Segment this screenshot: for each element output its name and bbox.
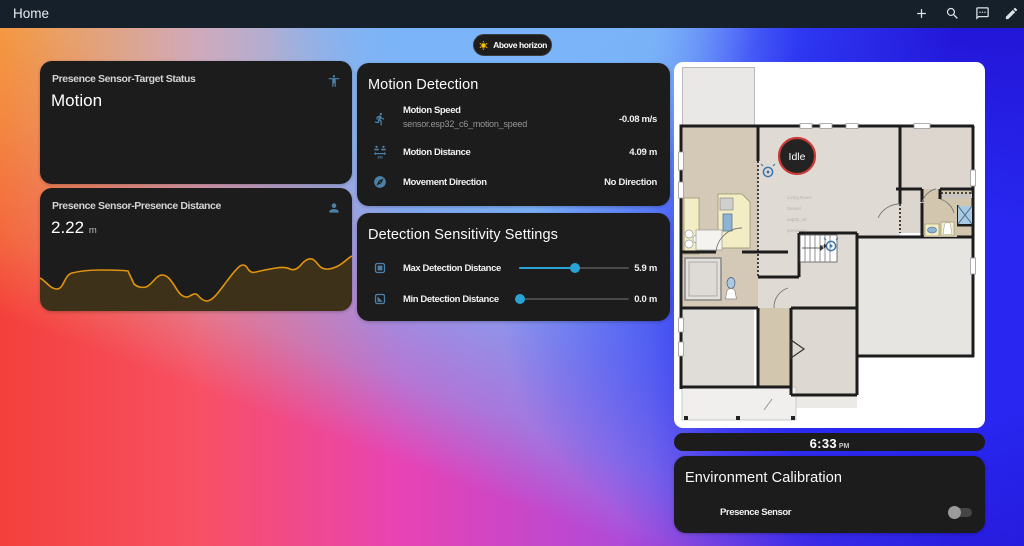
- svg-text:esp32_c6: esp32_c6: [787, 217, 807, 222]
- svg-text:Sensor: Sensor: [787, 206, 802, 211]
- svg-text:Living Room: Living Room: [787, 195, 812, 200]
- svg-text:2M: 2M: [377, 155, 382, 159]
- svg-text:Idle: Idle: [789, 151, 806, 163]
